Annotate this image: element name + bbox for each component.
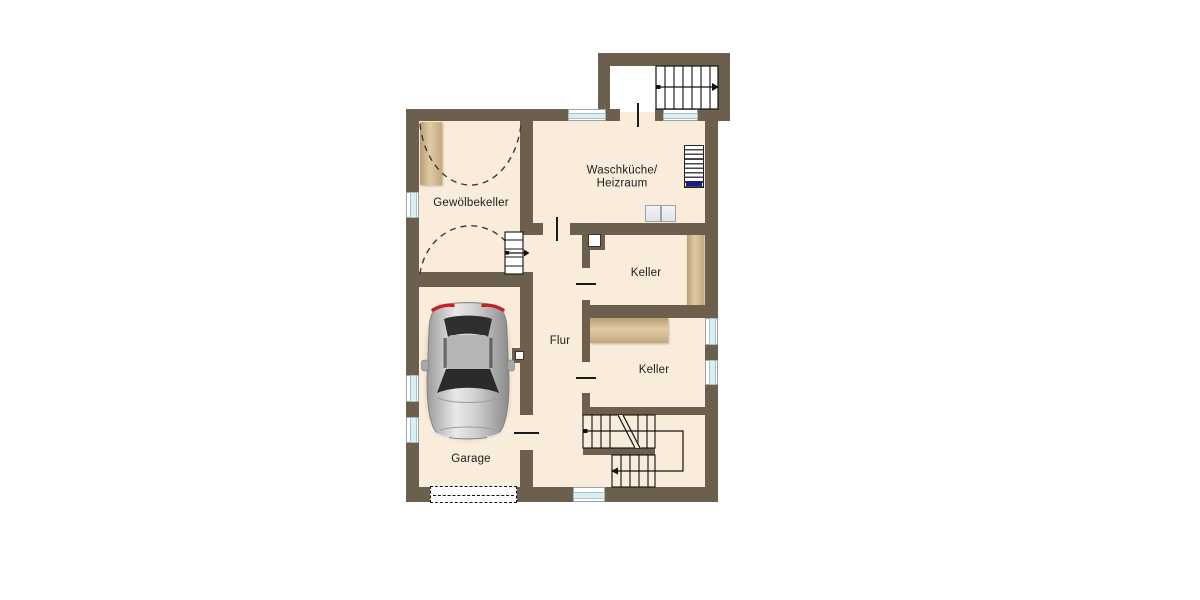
- main-stairs-icon: [583, 415, 683, 487]
- nook-stairs-icon: [505, 232, 530, 274]
- exterior-stairs-icon: [656, 66, 719, 109]
- room-label-keller-2: Keller: [639, 364, 670, 377]
- room-label-keller-1: Keller: [631, 267, 662, 280]
- car-top-view-icon: [422, 303, 515, 439]
- room-label-flur: Flur: [550, 335, 571, 348]
- floor-plan: Gewölbekeller Waschküche/ Heizraum Kelle…: [0, 0, 1200, 600]
- room-label-line: Waschküche/: [587, 165, 658, 177]
- room-label-waschkueche-heizraum: Waschküche/ Heizraum: [587, 165, 658, 190]
- room-label-line: Heizraum: [597, 177, 648, 189]
- room-label-gewoelbekeller: Gewölbekeller: [433, 197, 508, 210]
- room-label-garage: Garage: [451, 453, 491, 466]
- plan-overlay: [0, 0, 1200, 600]
